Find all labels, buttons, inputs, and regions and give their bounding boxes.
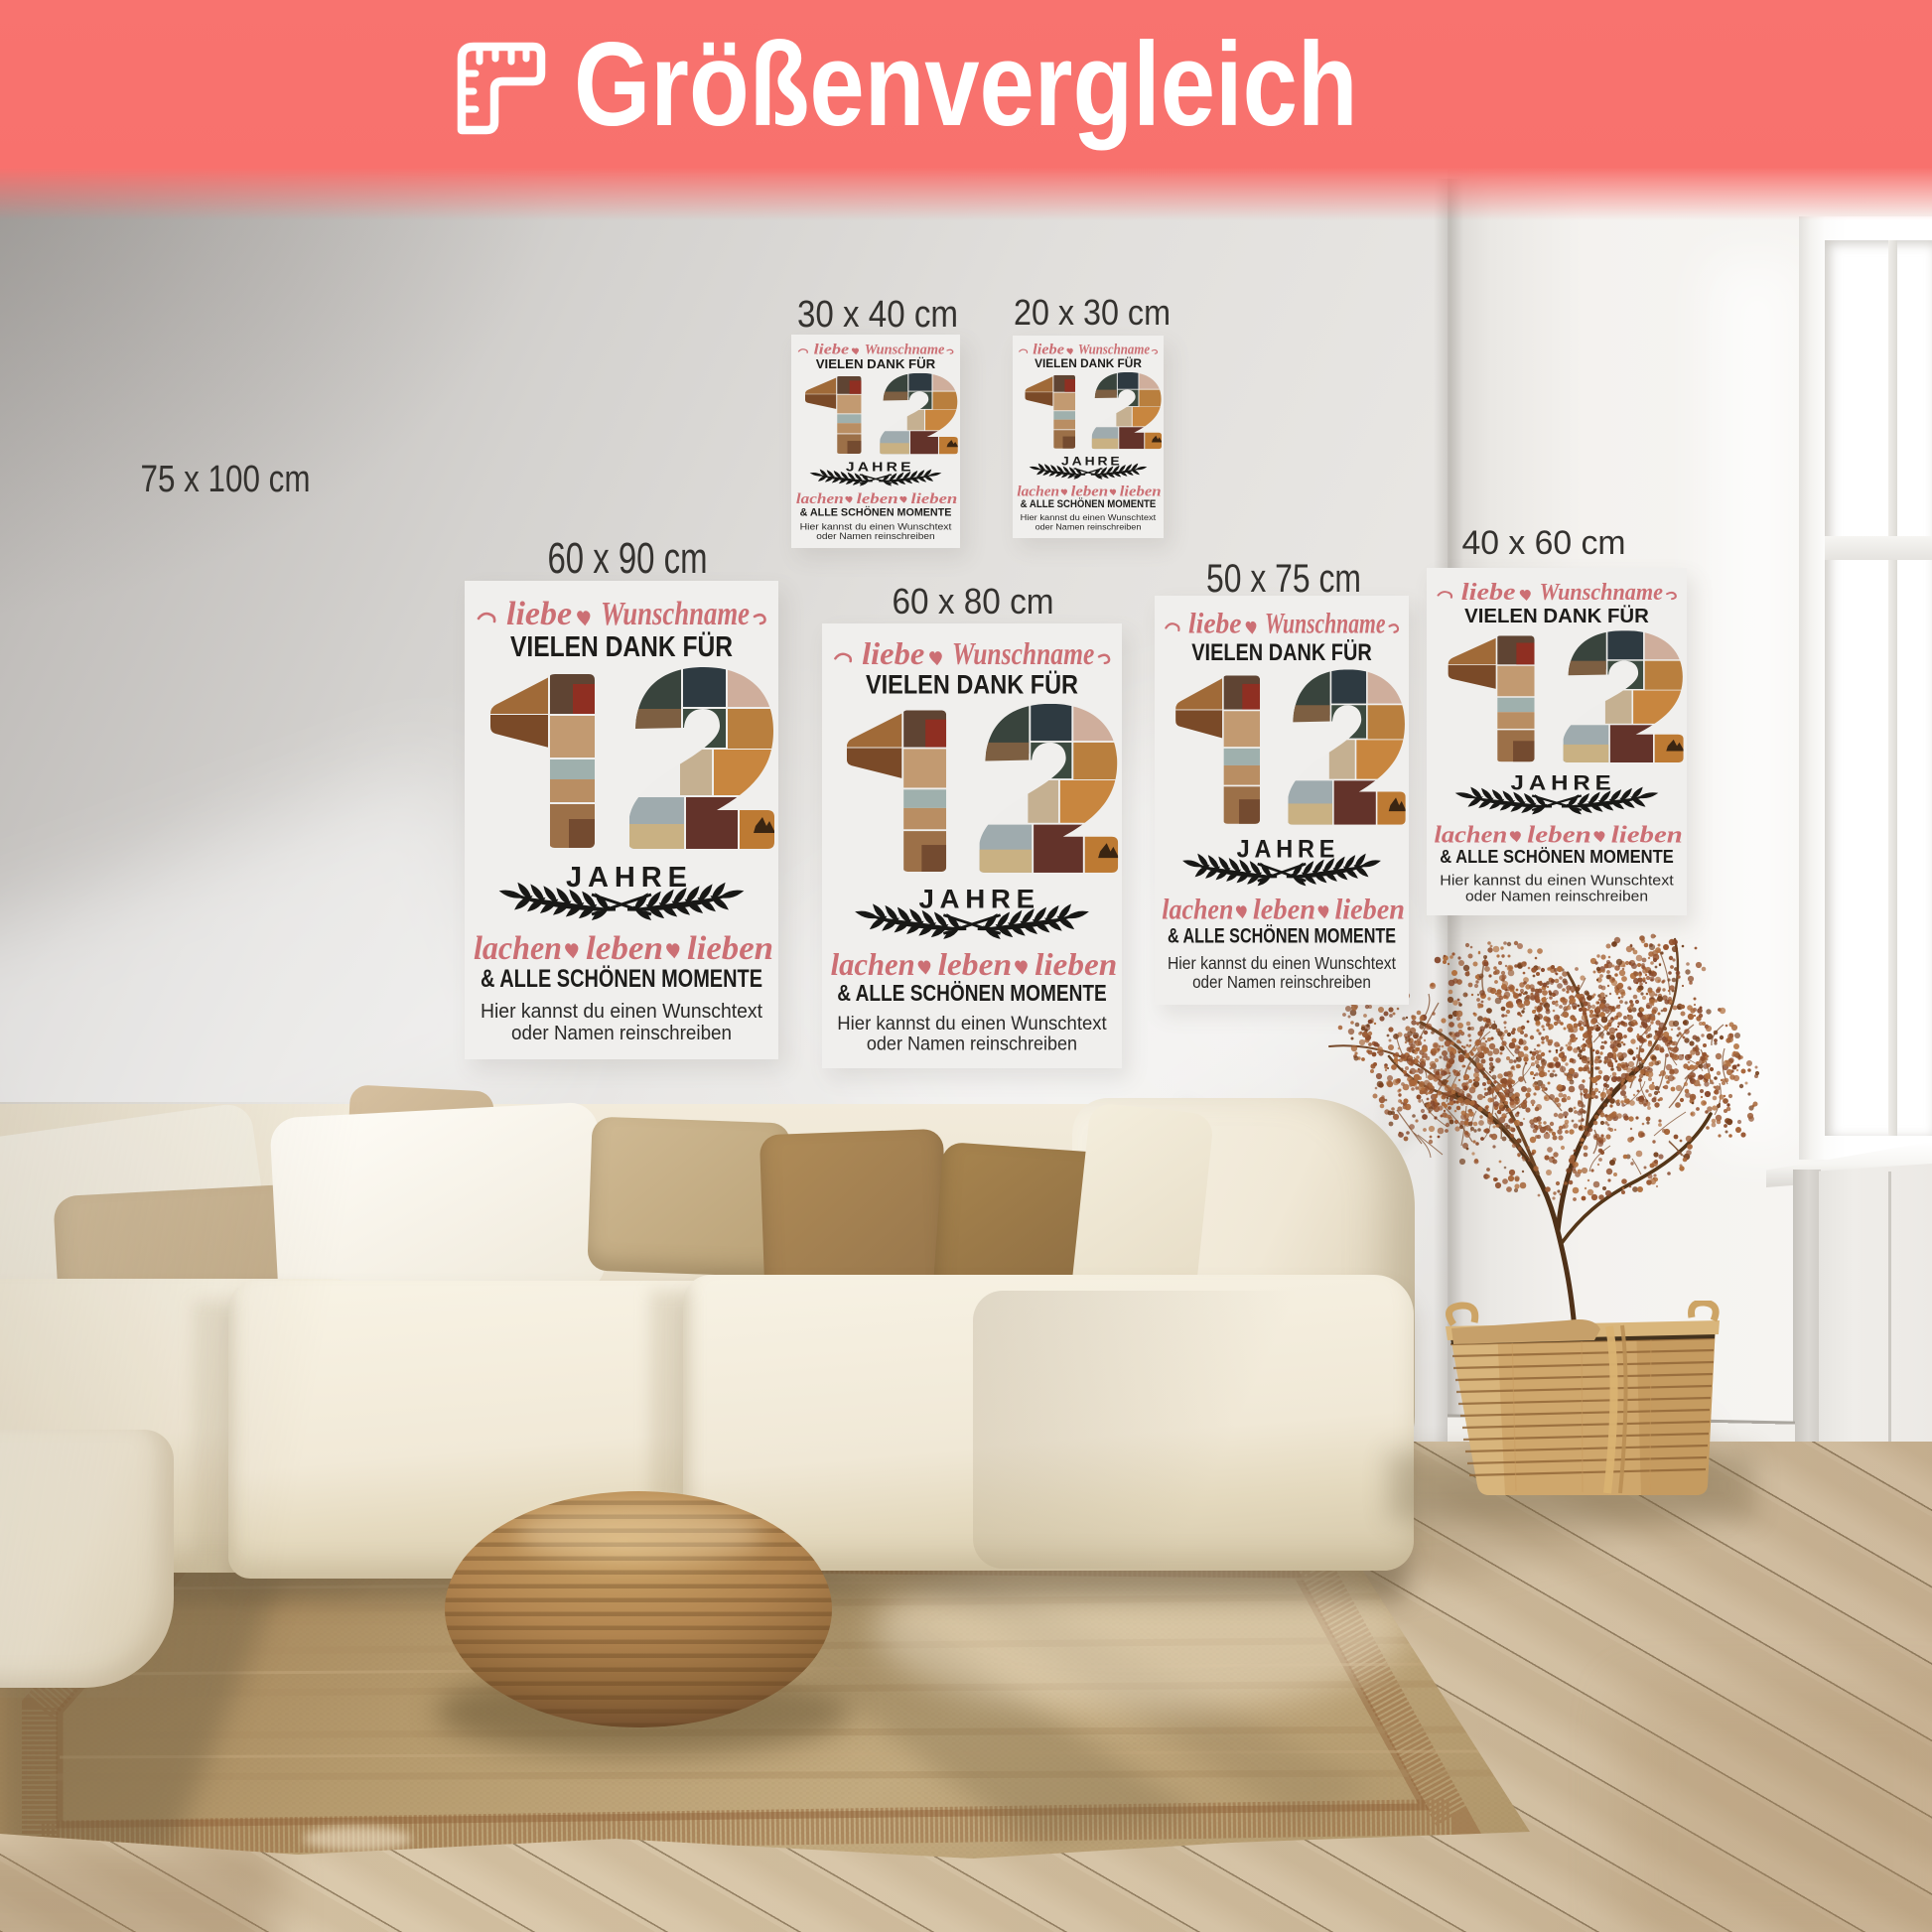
svg-text:75 x 100 cm: 75 x 100 cm (141, 458, 311, 499)
svg-text:60 x 90 cm: 60 x 90 cm (548, 534, 708, 581)
svg-text:40 x 60 cm: 40 x 60 cm (1462, 524, 1626, 562)
svg-text:60 x 80 cm: 60 x 80 cm (893, 582, 1054, 621)
svg-text:20 x 30 cm: 20 x 30 cm (1014, 293, 1171, 333)
svg-text:50 x 75 cm: 50 x 75 cm (1206, 557, 1361, 600)
